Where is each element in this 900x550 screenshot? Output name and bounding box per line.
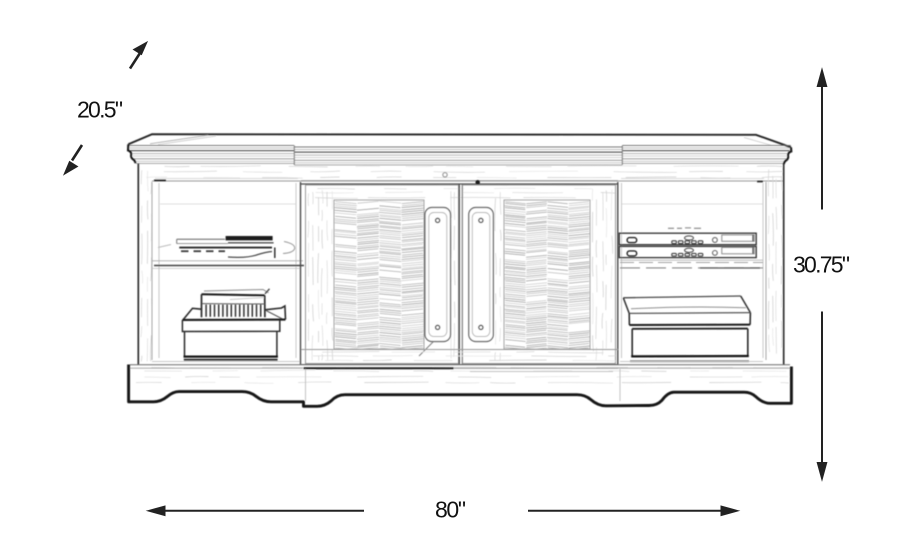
svg-text:30.75": 30.75"	[793, 252, 850, 278]
svg-text:20.5": 20.5"	[77, 97, 123, 123]
svg-text:80": 80"	[435, 497, 466, 523]
